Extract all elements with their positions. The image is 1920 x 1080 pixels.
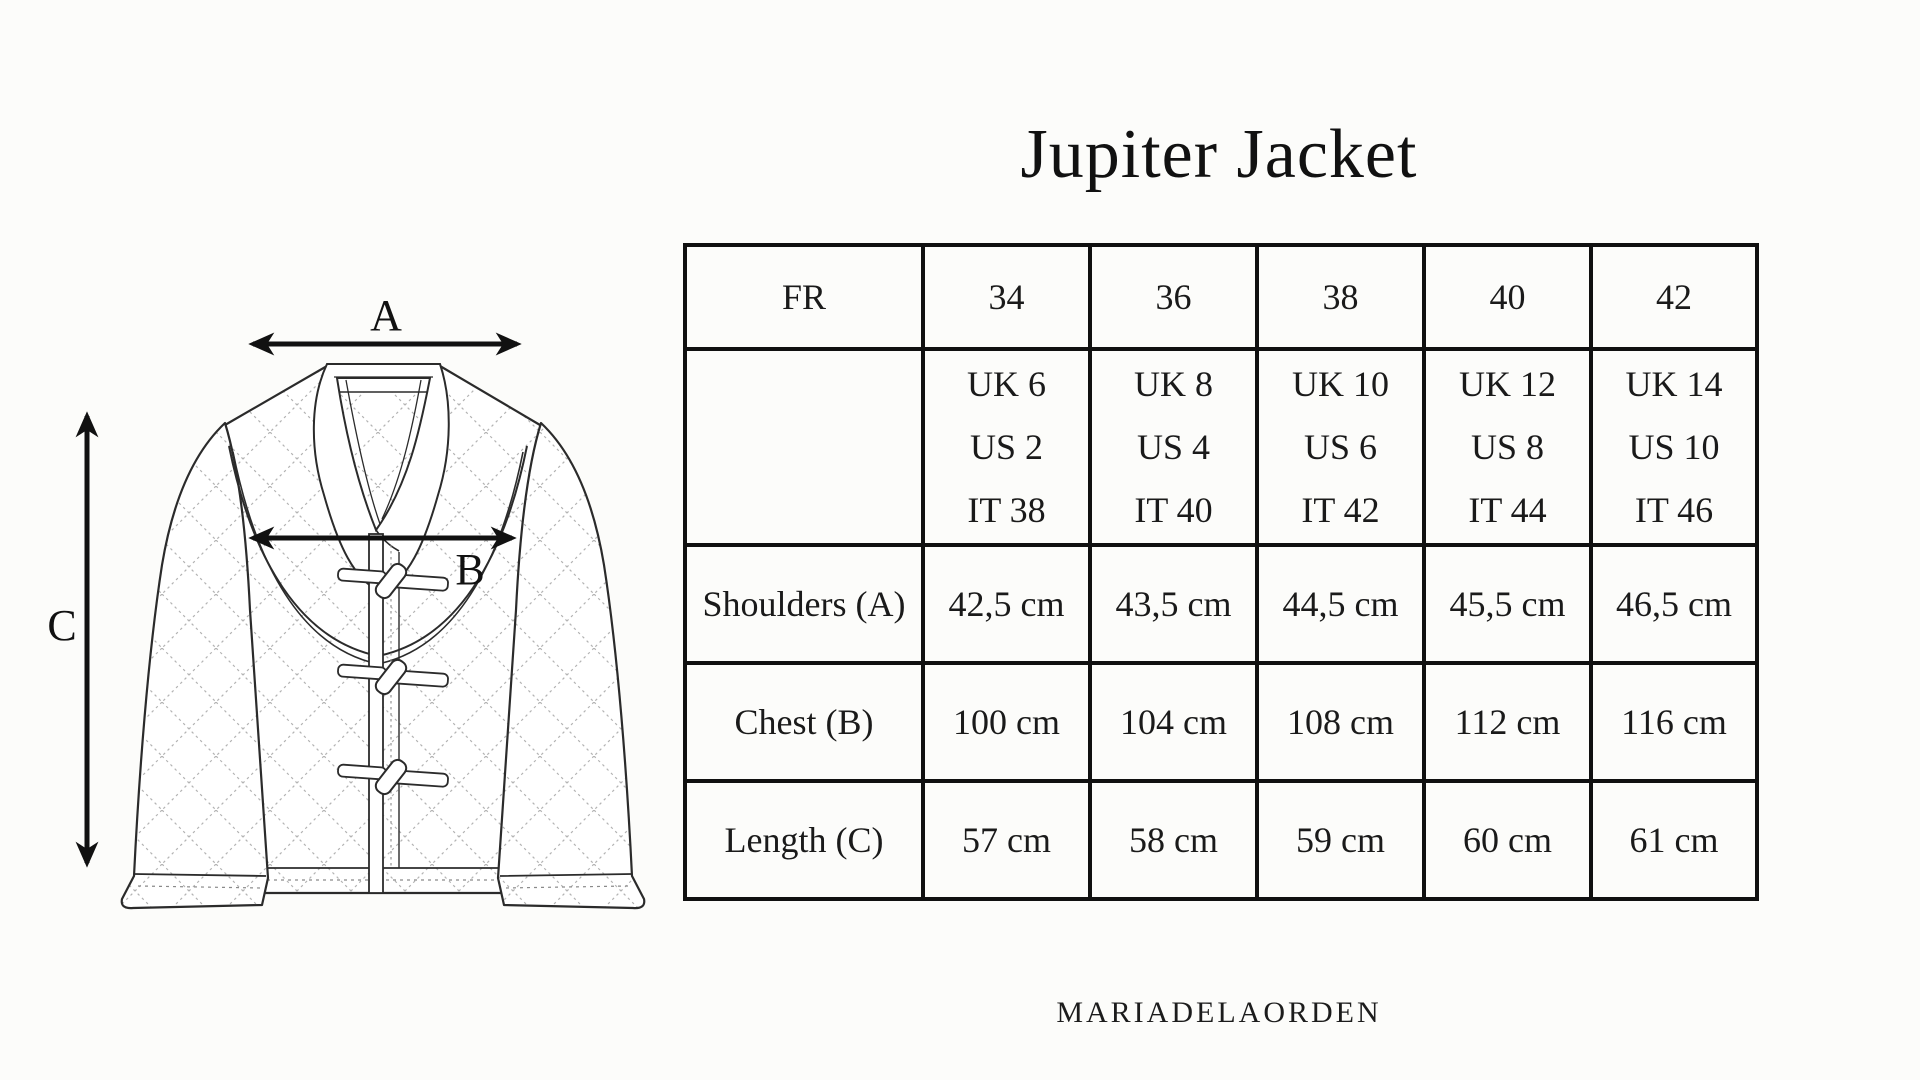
measure-value: 108 cm [1257,663,1424,781]
us-size: US 10 [1593,416,1755,479]
measure-value: 44,5 cm [1257,545,1424,663]
label-c: C [47,601,76,650]
measure-value: 60 cm [1424,781,1591,899]
conversion-cell: UK 10 US 6 IT 42 [1257,349,1424,545]
measure-value: 100 cm [923,663,1090,781]
measure-value: 112 cm [1424,663,1591,781]
header-cell-size: 36 [1090,245,1257,349]
header-cell-size: 38 [1257,245,1424,349]
table-row-header: FR 34 36 38 40 42 [685,245,1757,349]
conversion-cell: UK 14 US 10 IT 46 [1591,349,1757,545]
label-b: B [455,545,484,594]
us-size: US 4 [1092,416,1255,479]
measure-value: 43,5 cm [1090,545,1257,663]
uk-size: UK 6 [925,353,1088,416]
jacket-measurement-diagram: A B C [0,0,680,1080]
header-cell-fr: FR [685,245,923,349]
measure-value: 42,5 cm [923,545,1090,663]
uk-size: UK 12 [1426,353,1589,416]
header-cell-size: 42 [1591,245,1757,349]
uk-size: UK 14 [1593,353,1755,416]
us-size: US 8 [1426,416,1589,479]
empty-cell [685,349,923,545]
measure-value: 57 cm [923,781,1090,899]
measure-label: Chest (B) [685,663,923,781]
uk-size: UK 8 [1092,353,1255,416]
measure-value: 104 cm [1090,663,1257,781]
us-size: US 2 [925,416,1088,479]
it-size: IT 44 [1426,479,1589,542]
it-size: IT 38 [925,479,1088,542]
brand-logo-text: MARIADELAORDEN [683,998,1755,1028]
measure-value: 45,5 cm [1424,545,1591,663]
measure-label: Shoulders (A) [685,545,923,663]
measure-value: 116 cm [1591,663,1757,781]
it-size: IT 40 [1092,479,1255,542]
measure-value: 61 cm [1591,781,1757,899]
page-title: Jupiter Jacket [683,120,1755,190]
label-a: A [370,291,402,340]
table-row-chest: Chest (B) 100 cm 104 cm 108 cm 112 cm 11… [685,663,1757,781]
header-cell-size: 40 [1424,245,1591,349]
table-row-conversions: UK 6 US 2 IT 38 UK 8 US 4 IT 40 UK 10 US… [685,349,1757,545]
conversion-cell: UK 8 US 4 IT 40 [1090,349,1257,545]
table-row-shoulders: Shoulders (A) 42,5 cm 43,5 cm 44,5 cm 45… [685,545,1757,663]
header-cell-size: 34 [923,245,1090,349]
measure-label: Length (C) [685,781,923,899]
it-size: IT 46 [1593,479,1755,542]
measure-value: 46,5 cm [1591,545,1757,663]
size-table: FR 34 36 38 40 42 UK 6 US 2 IT 38 UK 8 [683,243,1759,901]
it-size: IT 42 [1259,479,1422,542]
size-guide-page: A B C Jupiter Jacket FR 34 36 38 40 42 [0,0,1920,1080]
us-size: US 6 [1259,416,1422,479]
conversion-cell: UK 12 US 8 IT 44 [1424,349,1591,545]
table-row-length: Length (C) 57 cm 58 cm 59 cm 60 cm 61 cm [685,781,1757,899]
conversion-cell: UK 6 US 2 IT 38 [923,349,1090,545]
measure-value: 58 cm [1090,781,1257,899]
measure-value: 59 cm [1257,781,1424,899]
uk-size: UK 10 [1259,353,1422,416]
